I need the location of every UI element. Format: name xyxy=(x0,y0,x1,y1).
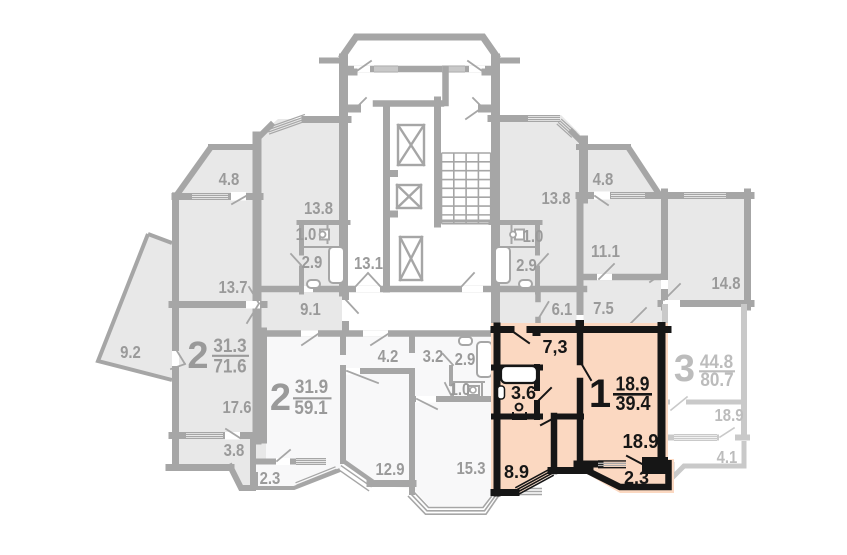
svg-text:9.2: 9.2 xyxy=(120,342,141,362)
svg-text:71.6: 71.6 xyxy=(213,357,246,378)
svg-text:3.2: 3.2 xyxy=(423,346,444,366)
svg-text:6.1: 6.1 xyxy=(552,299,573,319)
svg-text:1.0: 1.0 xyxy=(523,226,544,246)
svg-text:2.3: 2.3 xyxy=(260,468,281,488)
svg-text:80.7: 80.7 xyxy=(700,370,733,391)
svg-text:7,3: 7,3 xyxy=(542,337,567,357)
svg-text:1: 1 xyxy=(589,372,611,416)
svg-text:2.9: 2.9 xyxy=(302,252,323,272)
svg-text:3.6: 3.6 xyxy=(511,383,536,403)
svg-text:3.8: 3.8 xyxy=(224,440,245,460)
svg-text:3: 3 xyxy=(674,348,695,390)
svg-text:4.8: 4.8 xyxy=(219,169,240,189)
svg-text:11.1: 11.1 xyxy=(591,241,620,261)
svg-text:15.3: 15.3 xyxy=(457,458,486,478)
svg-text:18.9: 18.9 xyxy=(623,431,659,453)
svg-text:2: 2 xyxy=(187,335,208,377)
svg-text:1.0: 1.0 xyxy=(296,224,317,244)
svg-text:13.8: 13.8 xyxy=(304,198,333,218)
svg-text:2.9: 2.9 xyxy=(455,349,476,369)
svg-text:4.2: 4.2 xyxy=(378,346,399,366)
svg-text:7.5: 7.5 xyxy=(593,298,614,318)
svg-text:39.4: 39.4 xyxy=(616,393,652,415)
svg-text:2: 2 xyxy=(270,377,291,419)
svg-text:31.9: 31.9 xyxy=(295,377,328,398)
svg-text:59.1: 59.1 xyxy=(294,398,328,419)
svg-text:4.1: 4.1 xyxy=(717,447,738,467)
svg-text:18.9: 18.9 xyxy=(715,405,744,425)
svg-text:13.8: 13.8 xyxy=(542,188,571,208)
svg-text:8.9: 8.9 xyxy=(504,462,529,482)
svg-text:13.1: 13.1 xyxy=(354,253,383,273)
svg-text:2.9: 2.9 xyxy=(516,255,537,275)
svg-text:17.6: 17.6 xyxy=(223,397,252,417)
svg-text:13.7: 13.7 xyxy=(219,277,248,297)
svg-text:31.3: 31.3 xyxy=(213,336,246,357)
svg-text:1.0: 1.0 xyxy=(450,379,471,399)
svg-text:4.8: 4.8 xyxy=(593,169,614,189)
svg-text:9.1: 9.1 xyxy=(300,299,321,319)
svg-text:14.8: 14.8 xyxy=(712,273,741,293)
svg-text:2.3: 2.3 xyxy=(624,468,649,488)
svg-text:12.9: 12.9 xyxy=(376,459,405,479)
